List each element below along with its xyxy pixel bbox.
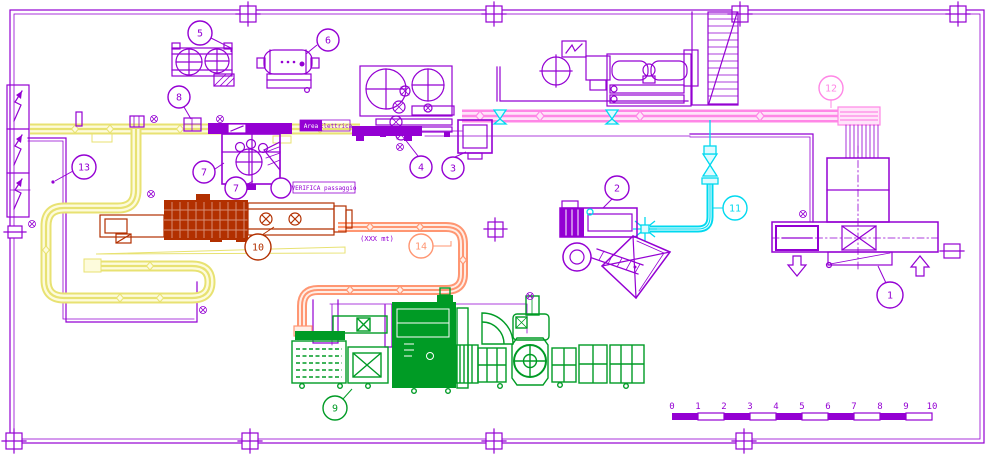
machine-5 — [172, 43, 234, 86]
balloon-11: 11 — [723, 196, 747, 220]
balloon-4: 4 — [410, 156, 432, 178]
staircase — [708, 12, 738, 104]
cyan-pipe-run — [494, 110, 718, 241]
balloon-5: 5 — [188, 21, 212, 45]
svg-text:Elettrica: Elettrica — [320, 123, 353, 130]
svg-text:Area: Area — [304, 123, 319, 130]
svg-text:14: 14 — [415, 242, 427, 253]
blower-2 — [560, 201, 670, 298]
scale-bar: 0 1 2 3 4 5 6 7 8 9 10 — [669, 402, 937, 420]
scale-tick-10: 10 — [927, 402, 938, 412]
scale-tick-4: 4 — [773, 402, 778, 412]
yellow-wedge — [96, 247, 345, 254]
svg-text:12: 12 — [825, 84, 837, 95]
area-elettrica-tag: Area Elettrica — [300, 120, 353, 131]
rotary-unit — [512, 296, 549, 385]
down-arrow-icon — [788, 256, 806, 276]
scale-bar-ticks: 0 1 2 3 4 5 6 7 8 9 10 — [669, 402, 937, 412]
svg-text:2: 2 — [614, 184, 620, 195]
pipe-diamond-ticks — [347, 223, 467, 294]
balloon-7b: 7 — [225, 177, 247, 199]
machine-1 — [772, 146, 938, 276]
balloon-3: 3 — [442, 157, 464, 179]
balloon-2: 2 — [605, 176, 629, 200]
scale-tick-9: 9 — [903, 402, 908, 412]
balloon-7a: 7 — [193, 161, 215, 183]
svg-text:11: 11 — [729, 204, 741, 215]
scale-tick-5: 5 — [799, 402, 804, 412]
svg-text:4: 4 — [418, 163, 424, 174]
compressor-unit — [540, 41, 698, 106]
balloon-empty — [271, 178, 291, 198]
scale-tick-6: 6 — [825, 402, 830, 412]
balloon-6: 6 — [317, 29, 339, 51]
plant-layout-page: 0 1 2 3 4 5 6 7 8 9 10 1 2 3 4 5 6 7 7 8 — [0, 0, 992, 457]
balloon-8: 8 — [168, 86, 190, 108]
svg-text:10: 10 — [252, 243, 264, 254]
svg-text:7: 7 — [233, 184, 239, 195]
up-arrow-icon — [911, 256, 929, 276]
vent-arrow-icon — [14, 91, 22, 209]
svg-text:6: 6 — [325, 36, 331, 47]
scale-tick-1: 1 — [695, 402, 700, 412]
balloon-1: 1 — [877, 282, 903, 308]
svg-text:5: 5 — [197, 29, 203, 40]
balloon-10: 10 — [245, 234, 271, 260]
distance-note: (XXX mt) — [360, 235, 394, 243]
svg-text:9: 9 — [332, 404, 338, 415]
svg-text:1: 1 — [887, 291, 893, 302]
balloon-12: 12 — [819, 76, 843, 100]
scale-tick-3: 3 — [747, 402, 752, 412]
scale-tick-7: 7 — [851, 402, 856, 412]
hopper-diamond — [602, 236, 670, 298]
scale-tick-2: 2 — [721, 402, 726, 412]
balloon-9: 9 — [323, 396, 347, 420]
pink-pipe-run — [462, 107, 880, 158]
flange-circle — [260, 213, 301, 225]
svg-text:8: 8 — [176, 93, 182, 104]
svg-text:13: 13 — [78, 163, 90, 174]
plant-layout-drawing: 0 1 2 3 4 5 6 7 8 9 10 1 2 3 4 5 6 7 7 8 — [0, 0, 992, 457]
duct-bundle — [846, 125, 878, 158]
balloon-13: 13 — [72, 155, 96, 179]
svg-text:3: 3 — [450, 164, 456, 175]
column-markers — [2, 2, 970, 453]
scale-tick-8: 8 — [877, 402, 882, 412]
balloon-14: 14 — [409, 234, 433, 258]
machine-6 — [257, 50, 319, 92]
svg-text:VERIFICA passaggio: VERIFICA passaggio — [291, 185, 356, 192]
verifica-passaggio-tag: VERIFICA passaggio — [291, 182, 356, 193]
svg-text:7: 7 — [201, 168, 207, 179]
scale-tick-0: 0 — [669, 402, 674, 412]
